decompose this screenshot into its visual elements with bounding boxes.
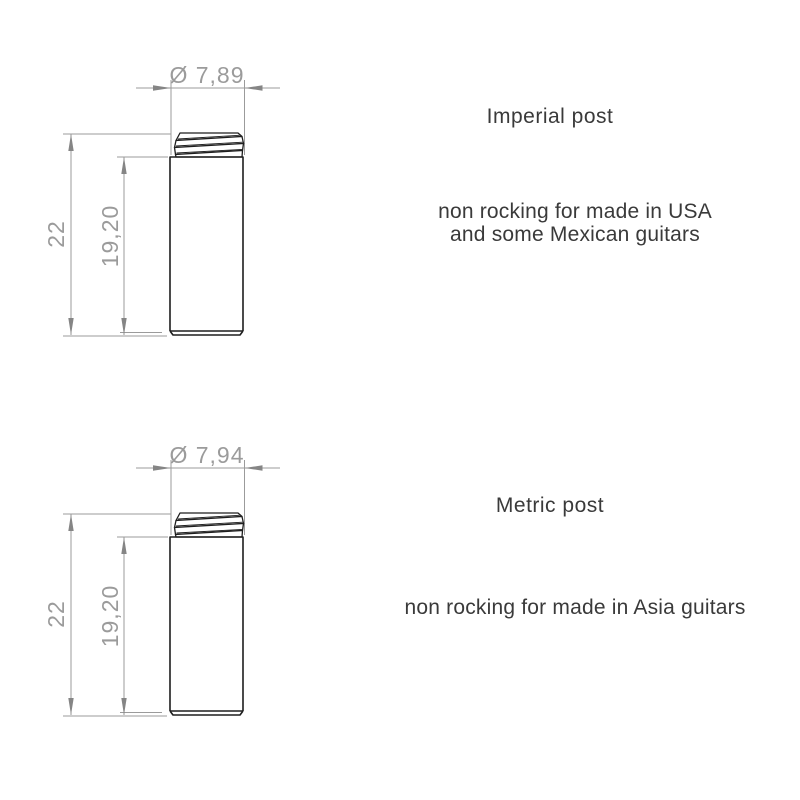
diameter-dimension-label: Ø 7,94	[169, 442, 244, 468]
body-height-dimension-label: 19,20	[97, 585, 123, 648]
diameter-dimension-label: Ø 7,89	[169, 62, 244, 88]
metric-post-drawing: Ø 7,94 22 19,20	[30, 420, 310, 740]
total-height-dimension-label: 22	[43, 220, 69, 248]
imperial-post-title: Imperial post	[380, 105, 720, 129]
technical-drawing-page: Ø 7,89 22 19,20 Ø 7,94 22 19,20 Imperial…	[0, 0, 800, 800]
metric-post-title: Metric post	[380, 494, 720, 518]
imperial-post-drawing: Ø 7,89 22 19,20	[30, 40, 310, 360]
metric-post-description: non rocking for made in Asia guitars	[385, 596, 765, 619]
body-height-dimension-label: 19,20	[97, 205, 123, 268]
total-height-dimension-label: 22	[43, 600, 69, 628]
imperial-post-description: non rocking for made in USA and some Mex…	[385, 200, 765, 246]
